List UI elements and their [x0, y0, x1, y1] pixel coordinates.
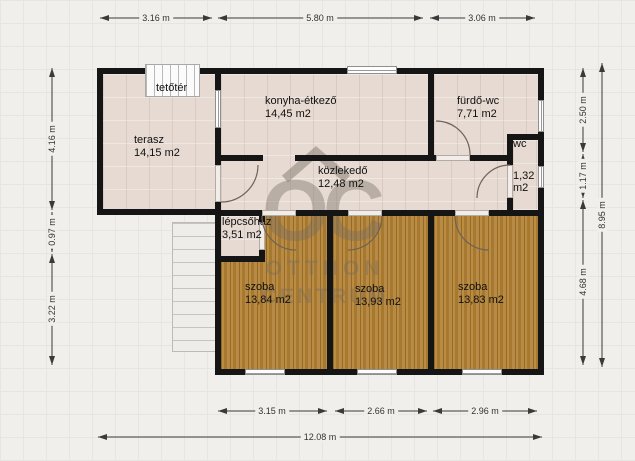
room-label-tetoter: tetőtér: [156, 82, 187, 95]
dim-label-right-2: 1.17 m: [578, 159, 588, 193]
door-terasz: [215, 165, 221, 202]
room-area: 3,51 m2: [222, 229, 272, 242]
room-label-furdo: fürdő-wc 7,71 m2: [457, 95, 499, 121]
floor-plan-page: { "rooms": [ {"name": "tetőtér", "area":…: [0, 0, 635, 461]
watermark-line1: OTTHON: [250, 258, 400, 279]
room-label-wc: wc 1,32 m2: [513, 138, 539, 194]
wall-konyha-bottom-stub: [215, 155, 263, 161]
door-furdo: [436, 155, 470, 161]
room-area: 14,45 m2: [265, 108, 337, 121]
window-szoba3-bottom: [462, 369, 502, 375]
door-szoba3: [455, 210, 489, 216]
dim-label-top-1: 3.16 m: [139, 13, 173, 23]
window-furdo-right: [538, 100, 544, 132]
wall-szoba2-szoba3: [428, 216, 434, 369]
room-area: 13,83 m2: [458, 294, 504, 307]
room-name: terasz: [134, 134, 180, 147]
room-name: közlekedő: [318, 165, 368, 178]
room-label-konyha: konyha-étkező 14,45 m2: [265, 95, 337, 121]
room-name: szoba: [245, 281, 291, 294]
dim-label-bottom-3: 2.96 m: [468, 406, 502, 416]
window-terasz-konyha: [215, 90, 221, 128]
wall-lepcso-bottom: [215, 256, 265, 262]
window-szoba2-bottom: [357, 369, 397, 375]
dim-label-right-3: 4.68 m: [578, 265, 588, 299]
room-label-lepcsohaz: lépcsőház 3,51 m2: [222, 216, 272, 242]
wall-bottom-b: [285, 369, 357, 375]
room-label-szoba2: szoba 13,93 m2: [355, 283, 401, 309]
dim-label-top-3: 3.06 m: [465, 13, 499, 23]
room-area: 1,32 m2: [513, 170, 539, 194]
wall-furdo-bottom-b: [470, 155, 512, 161]
wall-right-a: [538, 68, 544, 100]
wall-szoba1-szoba2: [327, 216, 333, 369]
wall-bottom-d: [502, 369, 544, 375]
dim-label-bottom-2: 2.66 m: [364, 406, 398, 416]
room-label-terasz: terasz 14,15 m2: [134, 134, 180, 160]
wall-right-c: [538, 188, 544, 375]
room-name: konyha-étkező: [265, 95, 337, 108]
wall-bottom-a: [215, 369, 245, 375]
dim-label-right-total: 8.95 m: [597, 198, 607, 232]
wall-terasz-right-a: [215, 68, 221, 90]
dim-label-bottom-1: 3.15 m: [255, 406, 289, 416]
wall-konyha-furdo: [428, 68, 434, 155]
room-name: szoba: [355, 283, 401, 296]
room-name: lépcsőház: [222, 216, 272, 229]
wall-konyha-bottom: [295, 155, 434, 161]
room-name: wc: [513, 138, 539, 150]
dim-label-left-2: 0.97 m: [47, 215, 57, 249]
room-label-kozlekedo: közlekedő 12,48 m2: [318, 165, 368, 191]
room-name: szoba: [458, 281, 504, 294]
exterior-stairs: [172, 222, 216, 352]
wall-furdo-bottom-a: [428, 155, 436, 161]
dim-label-top-2: 5.80 m: [303, 13, 337, 23]
room-area: 13,93 m2: [355, 296, 401, 309]
room-area: 14,15 m2: [134, 147, 180, 160]
dim-label-left-3: 3.22 m: [47, 292, 57, 326]
door-szoba2: [348, 210, 382, 216]
wall-szoba-top-c: [382, 210, 455, 216]
dim-label-right-1: 2.50 m: [578, 93, 588, 127]
room-label-szoba1: szoba 13,84 m2: [245, 281, 291, 307]
room-name: fürdő-wc: [457, 95, 499, 108]
wall-bottom-c: [397, 369, 462, 375]
dim-label-left-1: 4.16 m: [47, 122, 57, 156]
room-label-szoba3: szoba 13,83 m2: [458, 281, 504, 307]
dim-label-bottom-total: 12.08 m: [301, 432, 340, 442]
wall-szoba-top-b: [296, 210, 348, 216]
wall-szoba-top-d: [489, 210, 544, 216]
window-konyha-top: [347, 66, 397, 74]
wall-left: [97, 68, 103, 215]
room-area: 7,71 m2: [457, 108, 499, 121]
window-szoba1-bottom: [245, 369, 285, 375]
room-area: 13,84 m2: [245, 294, 291, 307]
wall-terasz-bottom: [97, 209, 221, 215]
room-area: 12,48 m2: [318, 178, 368, 191]
wall-szoba-left: [215, 210, 221, 375]
